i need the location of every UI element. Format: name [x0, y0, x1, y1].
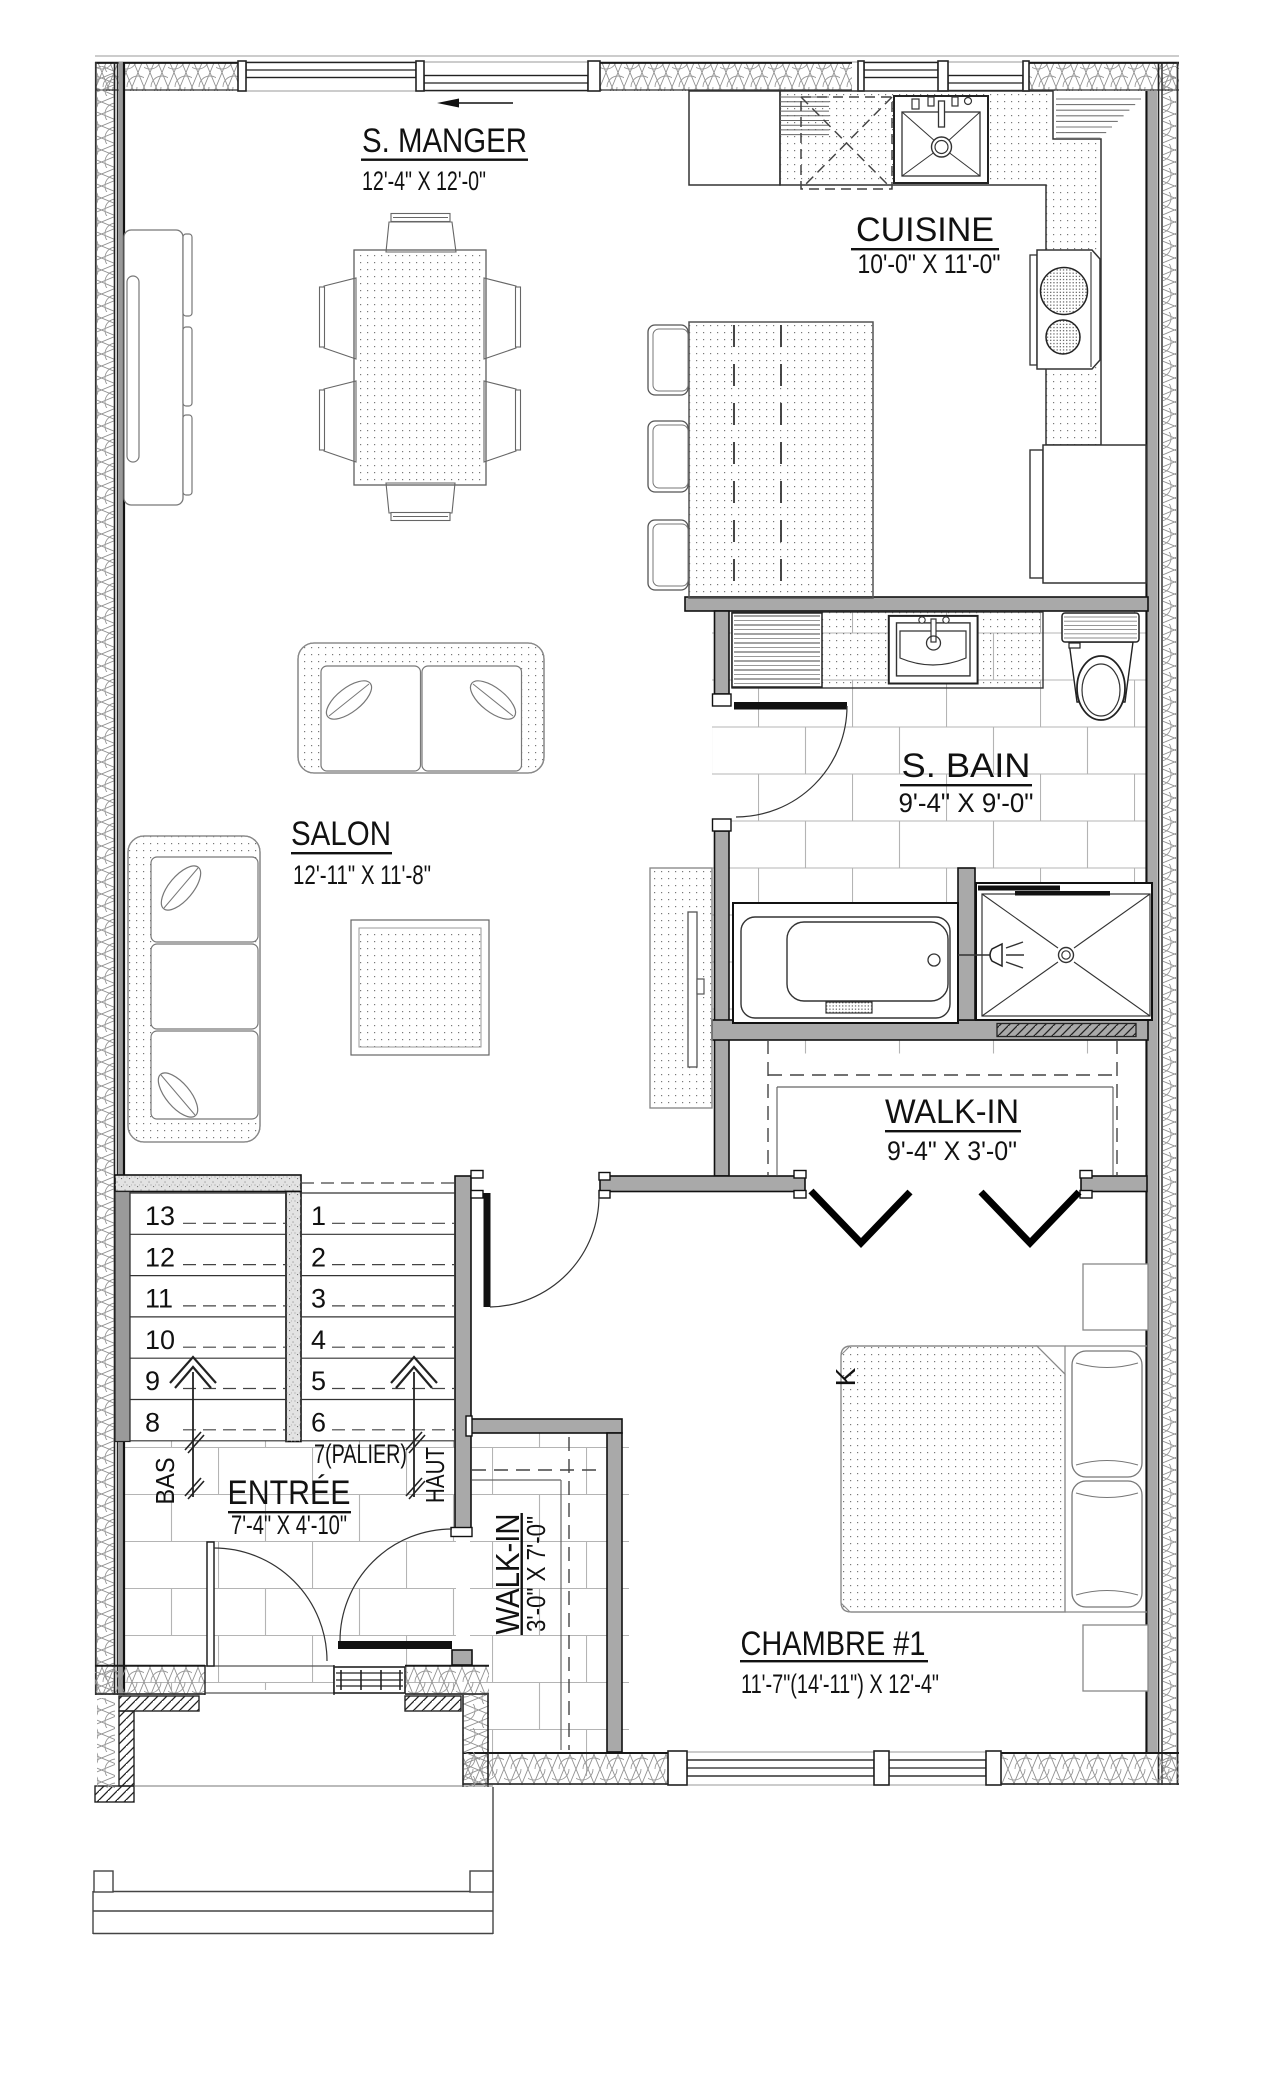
svg-text:9: 9 — [145, 1366, 160, 1396]
svg-text:2: 2 — [311, 1242, 326, 1272]
svg-text:13: 13 — [145, 1201, 175, 1231]
svg-text:S. MANGER: S. MANGER — [362, 122, 527, 160]
svg-text:7(PALIER): 7(PALIER) — [314, 1439, 407, 1469]
svg-text:7'-4" X 4'-10": 7'-4" X 4'-10" — [231, 1510, 347, 1540]
svg-text:4: 4 — [311, 1325, 326, 1355]
svg-text:12'-11" X 11'-8": 12'-11" X 11'-8" — [293, 860, 431, 890]
svg-text:9'-4" X 9'-0": 9'-4" X 9'-0" — [899, 788, 1034, 818]
svg-text:10: 10 — [145, 1325, 175, 1355]
svg-text:10'-0" X 11'-0": 10'-0" X 11'-0" — [858, 249, 1001, 279]
svg-text:5: 5 — [311, 1366, 326, 1396]
svg-text:HAUT: HAUT — [420, 1447, 450, 1503]
svg-text:S. BAIN: S. BAIN — [902, 747, 1031, 785]
svg-text:BAS: BAS — [150, 1458, 180, 1505]
svg-text:8: 8 — [145, 1408, 160, 1438]
svg-text:9'-4" X 3'-0": 9'-4" X 3'-0" — [887, 1136, 1017, 1166]
svg-text:WALK-IN: WALK-IN — [885, 1093, 1019, 1131]
svg-text:11: 11 — [145, 1284, 173, 1314]
svg-text:CHAMBRE #1: CHAMBRE #1 — [741, 1625, 926, 1663]
svg-text:1: 1 — [311, 1201, 326, 1231]
svg-text:3'-0" X 7'-0": 3'-0" X 7'-0" — [521, 1516, 551, 1632]
svg-text:CUISINE: CUISINE — [856, 211, 994, 249]
svg-text:12: 12 — [145, 1242, 175, 1272]
svg-text:12'-4" X 12'-0": 12'-4" X 12'-0" — [362, 166, 486, 196]
svg-text:K: K — [830, 1367, 861, 1386]
svg-text:3: 3 — [311, 1284, 326, 1314]
svg-text:ENTRÉE: ENTRÉE — [228, 1474, 351, 1512]
svg-text:6: 6 — [311, 1408, 326, 1438]
svg-text:SALON: SALON — [291, 815, 391, 853]
svg-text:11'-7"(14'-11") X 12'-4": 11'-7"(14'-11") X 12'-4" — [741, 1669, 939, 1699]
